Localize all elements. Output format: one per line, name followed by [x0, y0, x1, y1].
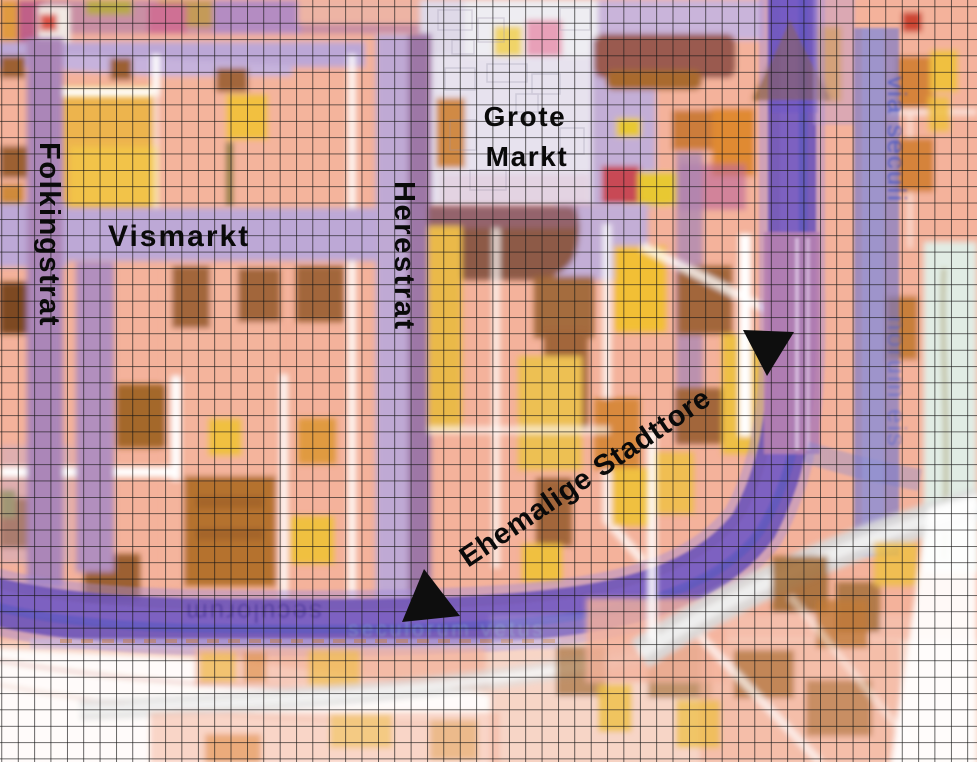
svg-text:Grote: Grote	[484, 101, 567, 132]
svg-text:Folkingstrat: Folkingstrat	[33, 142, 65, 327]
svg-text:Vismarkt: Vismarkt	[108, 220, 250, 253]
svg-text:Markt: Markt	[486, 141, 569, 172]
svg-text:Herestrat: Herestrat	[388, 181, 420, 332]
